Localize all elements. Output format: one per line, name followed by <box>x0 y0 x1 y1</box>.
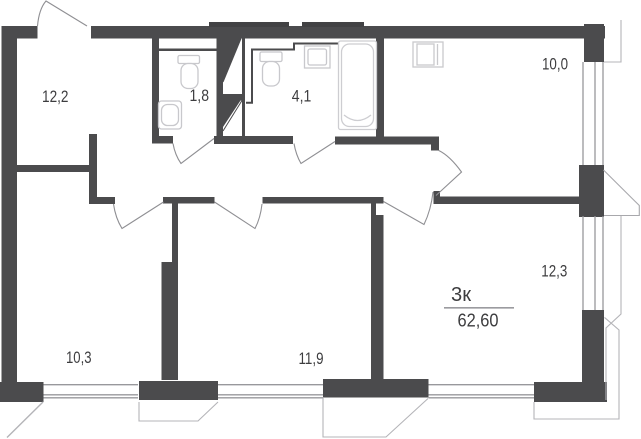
svg-text:11,9: 11,9 <box>299 349 324 368</box>
svg-text:4,1: 4,1 <box>292 87 312 106</box>
svg-text:62,60: 62,60 <box>458 311 499 331</box>
svg-text:10,0: 10,0 <box>542 55 568 74</box>
svg-text:10,3: 10,3 <box>66 348 92 367</box>
svg-text:1,8: 1,8 <box>190 86 210 105</box>
svg-text:12,3: 12,3 <box>541 262 567 281</box>
svg-text:3к: 3к <box>451 284 471 306</box>
svg-text:12,2: 12,2 <box>42 87 69 106</box>
